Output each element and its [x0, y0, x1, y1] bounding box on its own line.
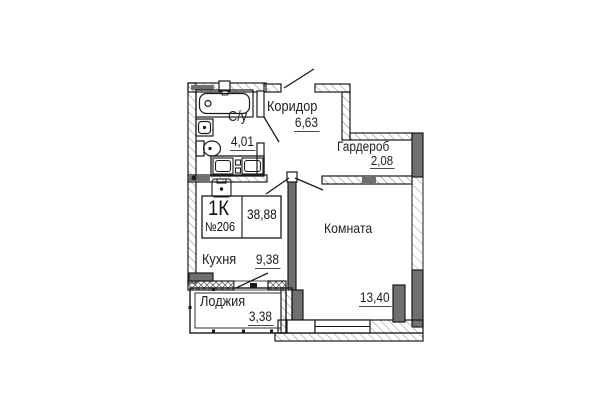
wall-bottom-right-column — [393, 285, 405, 322]
kitchen-counter-icon — [211, 156, 264, 176]
room-label-garderob: Гардероб — [337, 140, 389, 154]
riser-dot — [192, 176, 197, 181]
wall-top-corridor-left — [264, 84, 281, 92]
wall-bathroom-right-upper — [257, 91, 264, 117]
radiator — [189, 273, 213, 281]
room-label-lodzhiya: Лоджия — [200, 295, 245, 310]
door-pivot-block — [287, 172, 297, 182]
kitchen-fixtures — [211, 156, 264, 197]
kitchen-door-swing — [266, 178, 289, 194]
room-door-swing — [295, 178, 323, 190]
room-label-komnata: Комната — [324, 221, 372, 235]
room-label-koridor: Коридор — [267, 100, 317, 115]
toilet-icon — [196, 141, 221, 156]
floorplan-page: Коридор 6,63 С/у 4,01 Гардероб 2,08 Комн… — [0, 0, 600, 400]
room-area-koridor: 6,63 — [294, 116, 320, 132]
wall-segment-dark-top — [191, 85, 214, 90]
floorplan-drawing — [0, 0, 600, 400]
wall-top-corridor-right — [315, 84, 350, 92]
apartment-number-label: №206 — [205, 221, 235, 234]
window-right — [412, 177, 423, 270]
wall-divider — [288, 182, 296, 290]
entrance-door-swing — [284, 69, 314, 88]
room-label-su: С/у — [228, 110, 247, 125]
wall-right-lower — [412, 270, 423, 327]
bathroom-door-swing — [264, 117, 279, 142]
room-area-garderob: 2,08 — [370, 154, 395, 169]
room-area-komnata: 13,40 — [359, 291, 391, 307]
wall-bottom-strip — [275, 333, 423, 341]
apartment-total-area-label: 38,88 — [247, 208, 277, 222]
room-area-su: 4,01 — [230, 135, 256, 151]
room-area-kuhnya: 9,38 — [255, 253, 281, 269]
wall-right-upper — [412, 133, 423, 177]
room-label-kuhnya: Кухня — [202, 253, 236, 268]
balcony-door-stop — [250, 283, 257, 288]
wall-left — [188, 83, 196, 283]
wall-divider-column — [292, 290, 303, 322]
apartment-type-label: 1К — [208, 198, 229, 219]
room-area-lodzhiya: 3,38 — [248, 310, 274, 326]
wall-corridor-right — [342, 92, 350, 140]
wall-room-top-dark — [362, 177, 376, 183]
wall-room-bottom-block — [287, 320, 315, 333]
sink-icon — [196, 119, 213, 136]
